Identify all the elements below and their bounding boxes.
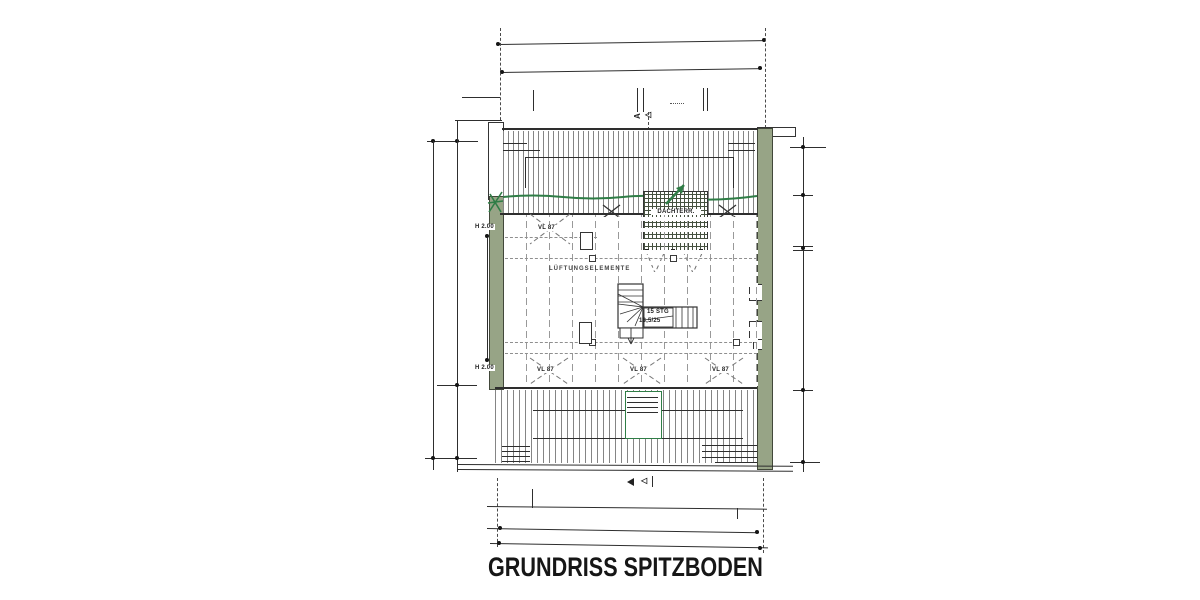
hatch-rung — [627, 397, 658, 398]
dimension-line — [487, 528, 759, 533]
roof-detail-line — [702, 451, 757, 452]
skylight-label: VL 87 — [629, 367, 648, 373]
roof-detail-line — [525, 157, 526, 188]
dimension-tick — [790, 147, 826, 148]
skylight-label: VL 87 — [537, 225, 556, 231]
dimension-dot — [755, 530, 759, 534]
dimension-tick — [790, 462, 820, 463]
roof-hatch-window — [625, 391, 662, 439]
dimension-line — [455, 120, 502, 121]
purlin-line — [505, 353, 757, 354]
post — [579, 322, 592, 344]
vent-note: LÜFTUNGSELEMENTE — [548, 266, 631, 272]
drawing-title: GRUNDRISS SPITZBODEN — [488, 552, 763, 583]
dimension-dot — [485, 358, 489, 362]
roof-detail-line — [525, 157, 733, 158]
roof-detail-line — [715, 462, 757, 463]
dimension-line — [457, 120, 458, 472]
dimension-line — [803, 137, 804, 472]
dimension-dot — [801, 246, 805, 250]
roof-detail-line — [728, 143, 755, 144]
section-marker-top: A — [634, 112, 642, 120]
roof-detail-line — [502, 446, 530, 447]
staircase — [615, 280, 710, 352]
purlin-line — [505, 258, 757, 259]
stair-label-rise: 18,5/25 — [638, 318, 661, 324]
roof-detail-line — [503, 150, 540, 151]
section-line-tick — [643, 88, 644, 112]
hatch-rung — [627, 402, 658, 403]
skylight-label: VL 87 — [711, 367, 730, 373]
eaves-marker-line — [503, 192, 757, 202]
section-line-tick — [652, 476, 653, 487]
reference-line — [500, 28, 501, 130]
dimension-tick — [793, 250, 813, 251]
north-arrow-icon — [662, 180, 692, 206]
roof-detail-line — [702, 457, 757, 458]
roof-detail-line — [728, 150, 755, 151]
dimension-dot — [801, 193, 805, 197]
dimension-dot — [801, 460, 805, 464]
dimension-line — [490, 543, 768, 548]
roof-detail-line — [502, 456, 530, 457]
hatch-rung — [627, 407, 658, 408]
connector-square — [589, 255, 596, 262]
dimension-line — [433, 141, 434, 470]
dimension-dot — [497, 541, 501, 545]
dimension-dot — [758, 66, 762, 70]
knee-wall-line — [495, 387, 757, 389]
reference-line — [765, 28, 766, 128]
dimension-dot — [498, 526, 502, 530]
connector-square — [733, 339, 740, 346]
hatch-rung — [627, 412, 658, 413]
dimension-tick — [533, 90, 534, 111]
roof-detail-line — [502, 451, 530, 452]
dimension-dot — [758, 546, 762, 550]
dimension-dot — [431, 456, 435, 460]
section-arrow-icon: ◁ — [640, 477, 648, 485]
roof-edge — [502, 128, 758, 130]
reference-line — [497, 478, 498, 547]
dimension-dot — [455, 383, 459, 387]
section-line-tick — [637, 88, 638, 112]
connector-square — [670, 255, 677, 262]
dimension-tick — [532, 489, 533, 508]
roof-detail-line — [733, 157, 734, 188]
stair-label-steps: 15 STG — [646, 309, 670, 315]
reference-line — [763, 478, 764, 553]
dimension-dot — [455, 456, 459, 460]
dimension-tick — [737, 508, 738, 519]
roof-detail-line — [702, 445, 757, 446]
dimension-tick — [462, 97, 500, 98]
fascia-line — [458, 464, 793, 467]
dimension-tick — [703, 88, 704, 111]
height-mark-bottom: H 2.00 — [474, 365, 495, 371]
roof-detail-line — [503, 143, 527, 144]
dimension-tick — [707, 88, 708, 111]
dimension-dot — [801, 388, 805, 392]
floor-plan-sheet: A ◁ DACHTERR. — [0, 0, 1200, 600]
fascia-line — [458, 469, 793, 472]
skylight-label: VL 87 — [536, 367, 555, 373]
dimension-tick — [670, 103, 684, 104]
roof-detail-line — [502, 461, 530, 462]
section-arrow-icon — [627, 478, 634, 486]
height-line — [487, 238, 488, 360]
dimension-line — [498, 40, 766, 45]
dimension-line — [487, 506, 767, 510]
post — [580, 232, 593, 250]
height-mark-top: H 2.00 — [474, 224, 495, 230]
dimension-dot — [801, 145, 805, 149]
dimension-line — [502, 68, 762, 73]
